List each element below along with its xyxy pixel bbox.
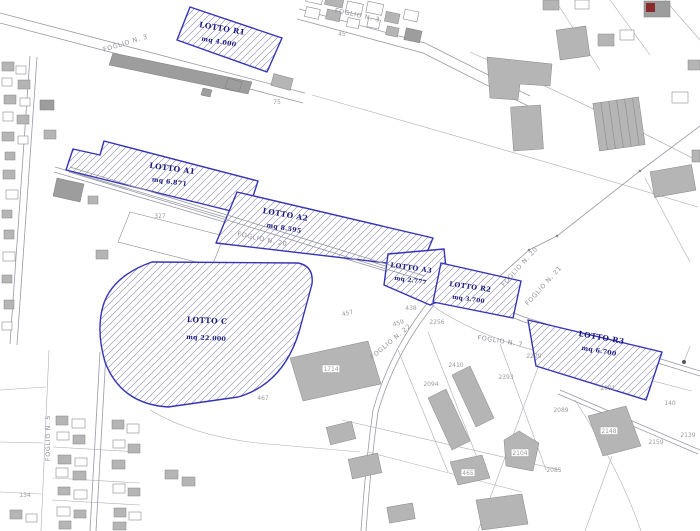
parcel-number: 2393	[498, 374, 513, 381]
parcel-number: 2148	[601, 428, 616, 435]
building-cluster-top-right	[487, 0, 700, 197]
parcel-number: 2104	[512, 450, 527, 457]
foglio-label: FOGLIO N. 5	[45, 415, 52, 461]
red-building	[646, 3, 655, 12]
foglio-boundary	[433, 126, 700, 293]
parcel-number: 2256	[429, 319, 444, 326]
parcel-number: 1714	[323, 366, 338, 373]
buildings	[2, 0, 700, 530]
parcel-lines	[0, 0, 700, 531]
building-outline-327	[118, 212, 224, 266]
parcel-number: 2094	[423, 381, 438, 388]
foglio-label: FOGLIO N. 22	[369, 323, 413, 361]
foglio-label: FOGLIO N. 7	[477, 334, 524, 348]
parcel-number: 2159	[648, 439, 663, 446]
building-cluster-bottom-left	[10, 416, 141, 530]
parcel-number: 2085	[546, 467, 561, 474]
parcel-number: 438	[405, 305, 417, 312]
parcel-number: 2091	[600, 385, 615, 392]
parcel-number: 467	[257, 395, 269, 402]
parcel-number: 2410	[448, 362, 463, 369]
parcel-number: 134	[19, 492, 31, 499]
parcel-number: 2089	[553, 407, 568, 414]
building-cluster-left	[2, 62, 56, 330]
cadastral-map: LOTTO R1 mq 4.000 LOTTO A1 mq 6.871 LOTT…	[0, 0, 700, 531]
survey-marker	[682, 360, 686, 364]
parcel-number: 327	[154, 213, 166, 220]
building-cluster-top-center	[302, 0, 426, 43]
parcel-number: 75	[273, 99, 281, 106]
parcel-number: 2229	[526, 353, 541, 360]
parcel-number: 45	[338, 31, 346, 38]
parcel-number: 465	[462, 470, 474, 477]
parcel-number: 457	[341, 309, 354, 319]
foglio-label: FOGLIO N. 21	[524, 265, 563, 308]
parcel-number: 2139	[680, 432, 695, 439]
foglio-label: FOGLIO N. 3	[102, 33, 148, 53]
parcel-number: 140	[664, 400, 676, 407]
